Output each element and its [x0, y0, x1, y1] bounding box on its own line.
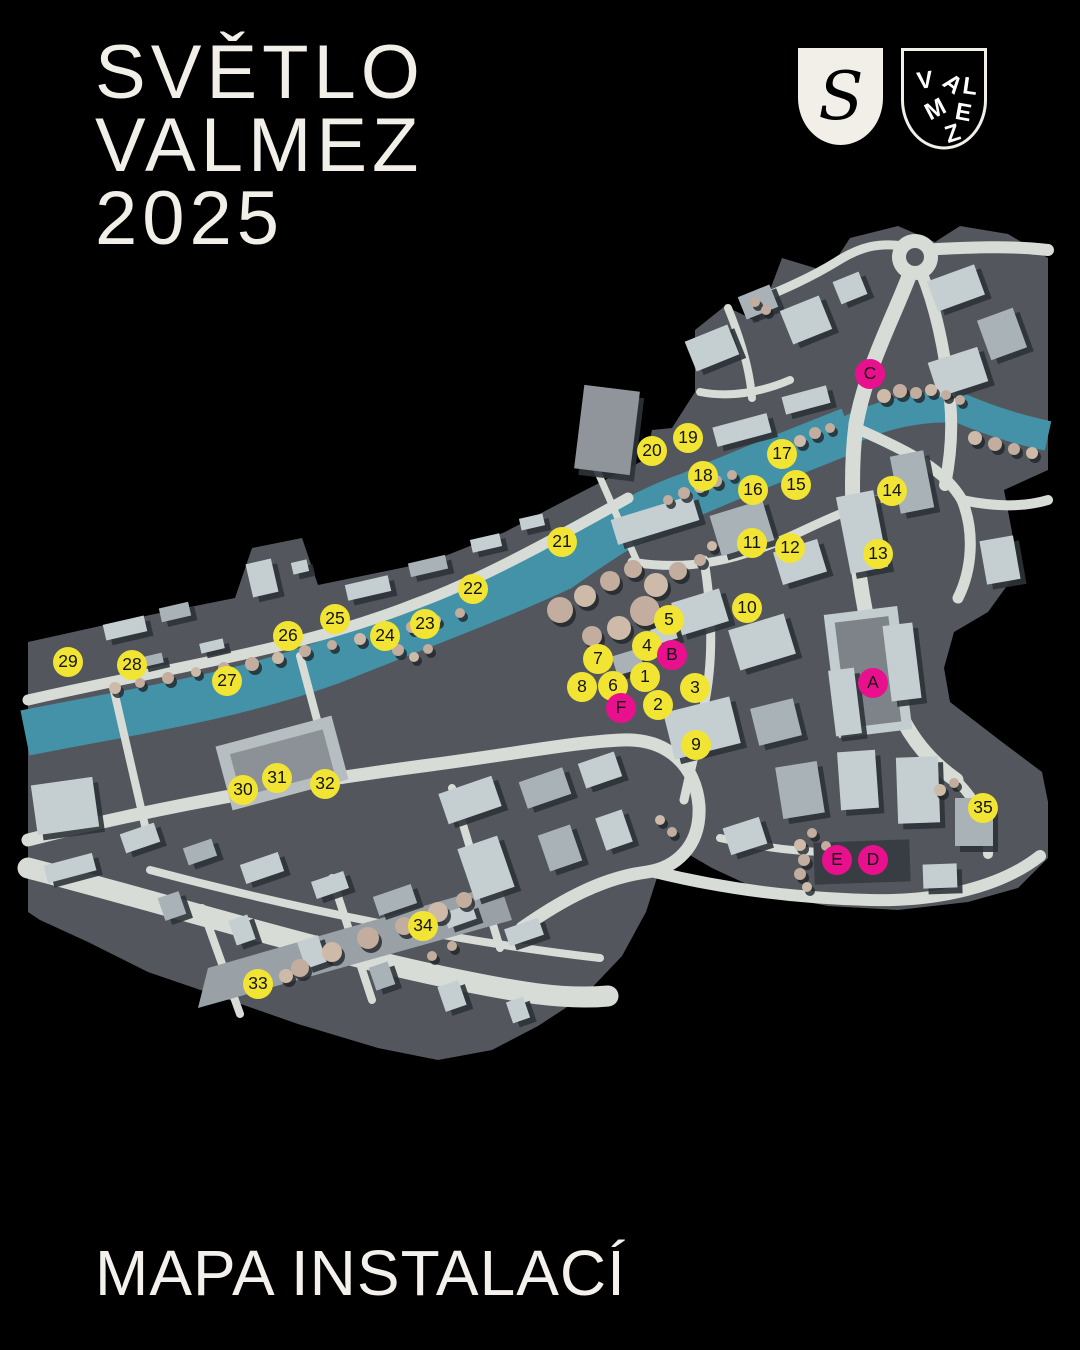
- installation-marker-28: 28: [117, 650, 147, 680]
- installation-marker-2: 2: [643, 690, 673, 720]
- installation-marker-35: 35: [968, 793, 998, 823]
- installation-marker-18: 18: [688, 461, 718, 491]
- installation-marker-10: 10: [732, 593, 762, 623]
- installation-marker-7: 7: [583, 644, 613, 674]
- installation-marker-16: 16: [738, 475, 768, 505]
- poster-title: SVĚTLO VALMEZ 2025: [95, 36, 425, 255]
- installation-marker-22: 22: [458, 574, 488, 604]
- installation-marker-F: F: [606, 693, 636, 723]
- installation-marker-5: 5: [654, 605, 684, 635]
- installation-marker-E: E: [822, 845, 852, 875]
- installation-marker-8: 8: [567, 672, 597, 702]
- installation-marker-30: 30: [228, 775, 258, 805]
- installation-marker-24: 24: [370, 621, 400, 651]
- installation-marker-32: 32: [310, 769, 340, 799]
- title-line-3: 2025: [95, 182, 425, 255]
- installation-marker-9: 9: [681, 730, 711, 760]
- installation-marker-20: 20: [637, 436, 667, 466]
- installation-marker-A: A: [858, 668, 888, 698]
- title-line-2: VALMEZ: [95, 109, 425, 182]
- installation-marker-25: 25: [320, 604, 350, 634]
- installation-marker-21: 21: [547, 527, 577, 557]
- installation-marker-17: 17: [767, 439, 797, 469]
- installation-marker-3: 3: [680, 673, 710, 703]
- title-line-1: SVĚTLO: [95, 36, 425, 109]
- installation-marker-27: 27: [212, 666, 242, 696]
- logo-group: S V A L M E Z: [798, 48, 987, 150]
- installation-marker-26: 26: [273, 621, 303, 651]
- installation-marker-19: 19: [673, 423, 703, 453]
- installation-marker-1: 1: [630, 662, 660, 692]
- installation-marker-D: D: [858, 845, 888, 875]
- installation-marker-B: B: [657, 640, 687, 670]
- svetlo-shield-logo: S: [798, 48, 883, 145]
- installation-marker-31: 31: [262, 763, 292, 793]
- installation-marker-34: 34: [408, 911, 438, 941]
- s-monogram: S: [818, 58, 863, 135]
- installation-marker-13: 13: [863, 539, 893, 569]
- installation-marker-12: 12: [775, 533, 805, 563]
- installation-marker-33: 33: [243, 969, 273, 999]
- installation-marker-14: 14: [877, 476, 907, 506]
- installation-marker-23: 23: [410, 609, 440, 639]
- installation-marker-15: 15: [781, 470, 811, 500]
- installation-marker-29: 29: [53, 647, 83, 677]
- map-caption: MAPA INSTALACÍ: [95, 1236, 626, 1310]
- installation-marker-11: 11: [737, 528, 767, 558]
- valmez-shield-logo: V A L M E Z: [901, 48, 987, 150]
- installation-marker-C: C: [855, 359, 885, 389]
